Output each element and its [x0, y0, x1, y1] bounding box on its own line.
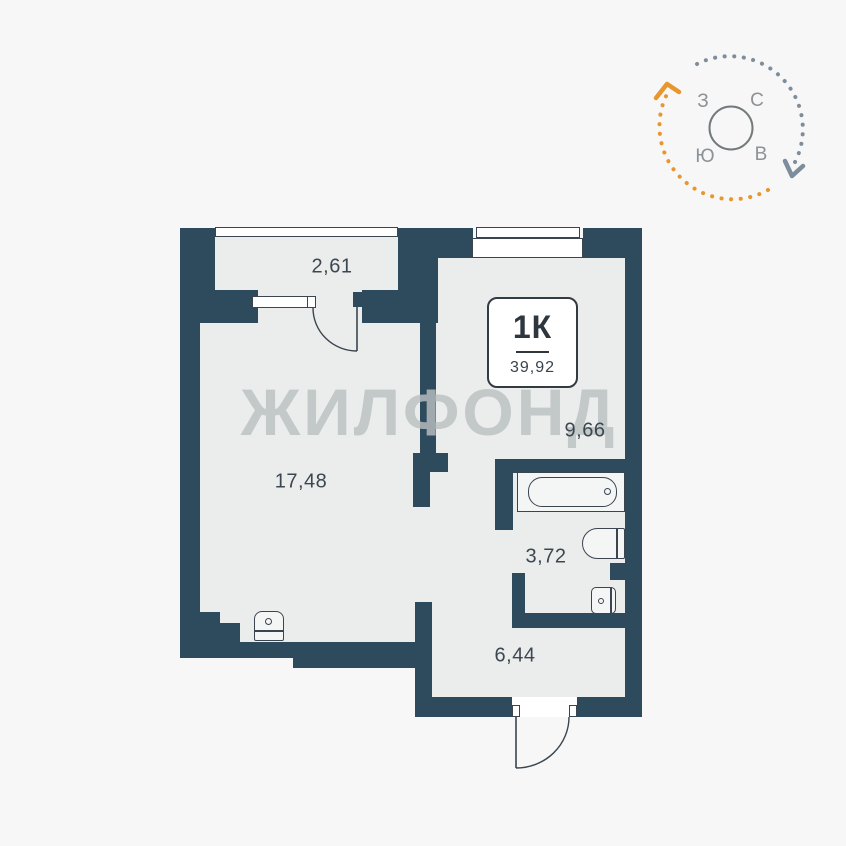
toilet-line — [610, 588, 612, 613]
room-area-label-balcony: 2,61 — [312, 256, 353, 279]
toilet-dot — [598, 598, 604, 604]
compass-south-label: Ю — [695, 146, 714, 167]
compass-west-label: З — [697, 91, 708, 112]
wall-segment — [180, 290, 200, 658]
room-area-label-bathroom: 3,72 — [526, 546, 567, 569]
wall-segment — [180, 642, 293, 658]
compass-north-label: С — [750, 90, 764, 111]
wall-segment — [436, 228, 473, 258]
wall-segment — [353, 292, 362, 307]
floor-balcony — [215, 232, 398, 296]
wall-segment — [415, 697, 512, 717]
compass-gray-arrow-icon — [785, 161, 803, 176]
room-window-upper — [476, 227, 580, 238]
unit-type-label: 1К — [513, 309, 552, 346]
entrance-door-jamb-left — [512, 705, 520, 717]
room-window-sill — [472, 238, 583, 258]
wall-segment — [413, 453, 448, 472]
compass-circle — [710, 107, 753, 150]
wall-segment — [413, 472, 430, 507]
wall-segment — [495, 459, 625, 473]
room-area-label-living: 17,48 — [275, 471, 328, 494]
balcony-door-window — [252, 296, 308, 308]
entrance-door-jamb-right — [569, 705, 577, 717]
wall-segment — [362, 290, 438, 323]
balcony-railing-window — [215, 227, 398, 237]
wall-segment — [398, 228, 438, 290]
wall-segment — [180, 228, 215, 296]
washbasin-icon — [582, 528, 625, 559]
wall-segment — [625, 228, 642, 717]
wall-segment — [495, 459, 513, 530]
entrance-door-arc — [516, 717, 569, 768]
room-area-label-room: 9,66 — [565, 420, 606, 443]
balcony-door-jamb — [307, 296, 316, 308]
sink-dot — [265, 618, 272, 625]
bathtub-drain — [604, 488, 611, 495]
unit-badge: 1К 39,92 — [487, 297, 578, 388]
wall-segment — [180, 290, 258, 323]
sink-icon — [254, 611, 284, 641]
wall-segment — [293, 642, 415, 668]
compass-orange-arc — [659, 92, 768, 199]
compass-gray-arc — [697, 56, 803, 164]
compass-orange-arrow-icon — [656, 84, 679, 98]
wall-segment — [577, 697, 642, 717]
compass: З С Ю В — [656, 56, 803, 199]
wall-segment — [610, 563, 625, 580]
unit-badge-divider — [516, 351, 549, 353]
watermark: ЖИЛФОНД — [149, 377, 709, 447]
sink-line — [255, 630, 283, 632]
room-area-label-hallway: 6,44 — [495, 645, 536, 668]
wall-segment — [512, 613, 625, 628]
washbasin-line — [616, 529, 618, 558]
entrance-door-opening — [512, 697, 577, 717]
compass-east-label: В — [755, 144, 768, 165]
floor-plan: З С Ю В ЖИЛФОНД 1К 39,92 2,61 17,48 9,66… — [0, 0, 846, 846]
unit-total-area: 39,92 — [510, 359, 555, 377]
wall-segment — [583, 228, 627, 258]
